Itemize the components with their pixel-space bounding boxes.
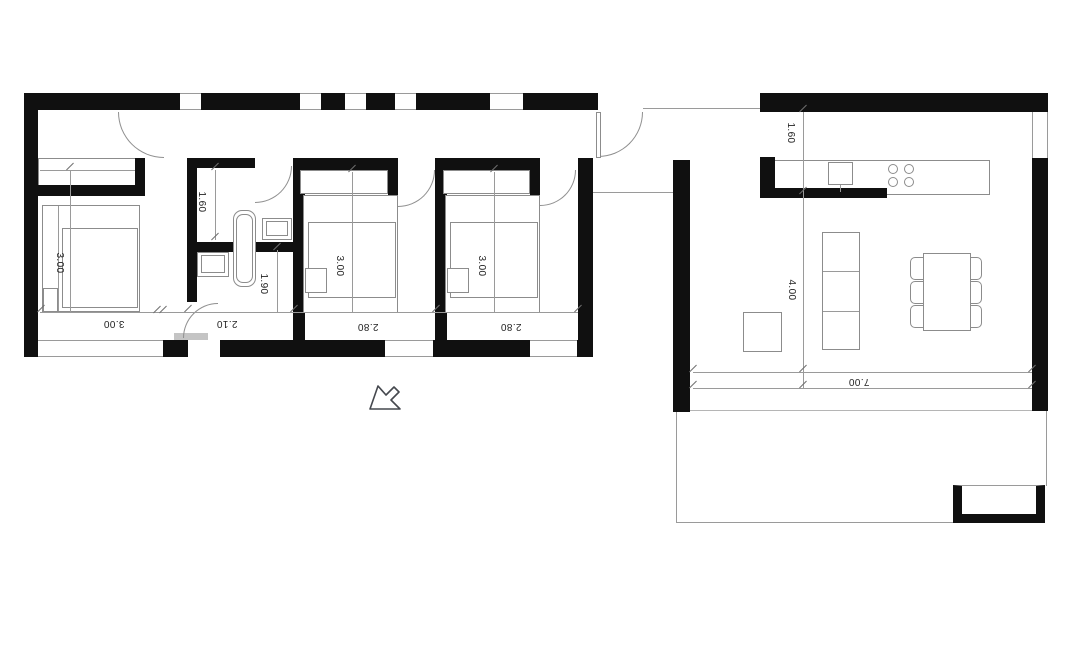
wall-bedroom3-door-stub — [530, 158, 540, 196]
dining-table — [923, 253, 971, 331]
dim-line-bathroom-190 — [277, 250, 278, 312]
window-opening — [300, 93, 321, 110]
dim-line-bathroom-160 — [215, 170, 216, 240]
connector-glass-bottom — [593, 192, 673, 193]
dim-label-bedroom1-width: 3.00 — [98, 317, 130, 329]
wall-closet1-bottom — [38, 185, 145, 196]
dim-label-bedroom1-depth: 3.00 — [53, 247, 65, 279]
wall-bathroom-left — [187, 158, 197, 302]
window-right-wall — [1032, 112, 1048, 158]
window-bedroom2-front — [385, 340, 433, 357]
dim-label-bedroom2-width: 2.80 — [352, 320, 384, 332]
wall-right-left-wing — [578, 158, 593, 357]
glass-wall-living — [690, 410, 1032, 411]
dim-label-kitchen-offset: 1.60 — [784, 117, 796, 149]
terrace-planter — [953, 485, 1045, 523]
door-arc-bathroom — [255, 166, 292, 203]
dim-label-hallway-width: 2.10 — [211, 317, 243, 329]
dim-line-left-wing-bottom — [40, 312, 578, 313]
dim-label-bedroom2-depth: 3.00 — [333, 250, 345, 282]
door-arc-bedroom2 — [398, 170, 435, 207]
kitchen-counter-base — [770, 188, 887, 198]
bathtub-rim — [236, 214, 253, 283]
dim-label-bathroom-width: 1.60 — [195, 186, 207, 218]
wall-bedroom2-top — [297, 158, 398, 170]
door-opening-hall — [188, 340, 220, 357]
window-opening — [345, 93, 366, 110]
dim-label-living-depth: 4.00 — [785, 274, 797, 306]
cooktop-burner — [888, 177, 898, 187]
dim-label-living-width: 7.00 — [843, 375, 875, 387]
floor-plan: 3.00 3.00 1.60 1.90 2.10 3.00 2.80 3.00 … — [0, 0, 1080, 663]
window-bedroom1-front — [38, 340, 163, 357]
sofa-cushion-line — [823, 311, 859, 312]
door-arc-bedroom1 — [118, 112, 164, 158]
wall-left-right-wing — [673, 160, 690, 412]
dim-line-living-bottom-2 — [693, 388, 1032, 389]
dim-label-bedroom3-depth: 3.00 — [475, 250, 487, 282]
door-arc-entry — [598, 112, 643, 157]
cooktop-burner — [904, 164, 914, 174]
terrace-edge-left — [676, 412, 677, 523]
wall-left — [24, 93, 38, 357]
connector-glass-top — [643, 108, 762, 109]
sink-bathroom-lower-basin — [201, 255, 225, 273]
wall-bathroom-top — [187, 158, 255, 168]
wardrobe-bedroom2 — [300, 170, 388, 194]
kitchen-tap-line — [840, 185, 841, 192]
kitchen-sink — [828, 162, 853, 185]
wall-top-right-wing — [760, 93, 1048, 112]
terrace-edge-bottom — [676, 522, 954, 523]
door-arc-bedroom3 — [540, 170, 576, 206]
bed-1-pillow — [43, 288, 58, 312]
entry-door-leaf — [596, 112, 601, 158]
dim-line-living-vertical — [803, 112, 804, 388]
wardrobe-bedroom1 — [38, 158, 145, 187]
dim-label-bedroom3-width: 2.80 — [495, 320, 527, 332]
window-opening — [395, 93, 416, 110]
wall-closet1-stub — [135, 158, 145, 196]
dim-line-bedroom2 — [352, 172, 353, 312]
cooktop-burner — [888, 164, 898, 174]
sofa — [822, 232, 860, 350]
wall-bedroom2-door-stub — [388, 158, 398, 196]
sofa-cushion-line — [823, 271, 859, 272]
cooktop-burner — [904, 177, 914, 187]
cursor-pointer — [366, 380, 408, 414]
bed-2-pillow — [305, 268, 327, 293]
bed-1-duvet — [62, 228, 138, 308]
wall-bedroom3-top — [440, 158, 540, 170]
bed-3-pillow — [447, 268, 469, 293]
dim-line-living-bottom-1 — [693, 372, 1032, 373]
dim-line-bedroom3 — [494, 172, 495, 312]
window-opening — [180, 93, 201, 110]
wardrobe-shelf-line — [40, 170, 143, 171]
terrace-edge-right — [1046, 411, 1047, 486]
wardrobe-bedroom3 — [443, 170, 530, 194]
dim-label-bathroom-length: 1.90 — [257, 268, 269, 300]
wall-right-right-wing — [1032, 157, 1048, 411]
dim-line-bedroom1 — [70, 170, 71, 312]
coffee-table — [743, 312, 782, 352]
window-bedroom3-front — [530, 340, 577, 357]
window-opening — [490, 93, 523, 110]
sink-bathroom-upper-basin — [266, 221, 288, 236]
